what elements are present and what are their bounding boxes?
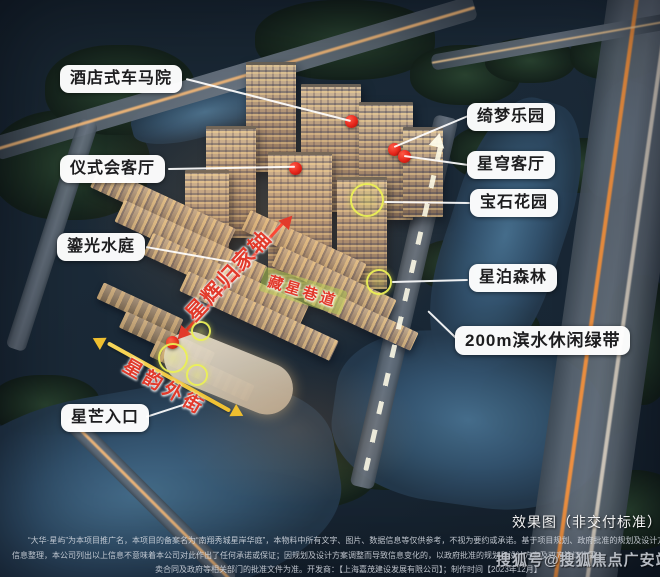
aerial-render: 星辉归家轴 藏星巷道 星韵外街 酒店式车马院 仪式会客厅 鎏光水庭 星芒入口 绮…	[0, 0, 660, 577]
watermark: 搜狐号@搜狐焦点广安站	[496, 549, 660, 570]
disclaimer-line-3: 卖合同及政府等相关部门的批准文件为准。开发商：【上海嘉茂建设发展有限公司】；制作…	[155, 565, 542, 575]
poi-label-hotel-carriage-court: 酒店式车马院	[60, 65, 182, 93]
disclaimer-line-1: “大华·星屿”为本项目推广名，本项目的备案名为“南翔秀城星岸华庭”，本物料中所有…	[28, 536, 660, 546]
poi-label-ceremony-lounge: 仪式会客厅	[60, 155, 165, 183]
highlight-ring-icon	[186, 364, 208, 386]
poi-label-gleam-water-court: 鎏光水庭	[57, 233, 145, 261]
poi-label-dream-playground: 绮梦乐园	[467, 103, 555, 131]
render-standard-note: 效果图（非交付标准）	[512, 512, 660, 532]
poi-label-starbeam-entrance: 星芒入口	[61, 404, 149, 432]
highlight-ring-icon	[350, 183, 384, 217]
highlight-ring-icon	[366, 269, 392, 295]
poi-label-gem-garden: 宝石花园	[470, 189, 558, 217]
poi-label-star-harbor-forest: 星泊森林	[469, 264, 557, 292]
poi-label-waterfront-greenbelt: 200m滨水休闲绿带	[455, 326, 630, 355]
poi-label-starsky-lounge: 星穹客厅	[467, 151, 555, 179]
map-pin-icon	[289, 162, 302, 175]
